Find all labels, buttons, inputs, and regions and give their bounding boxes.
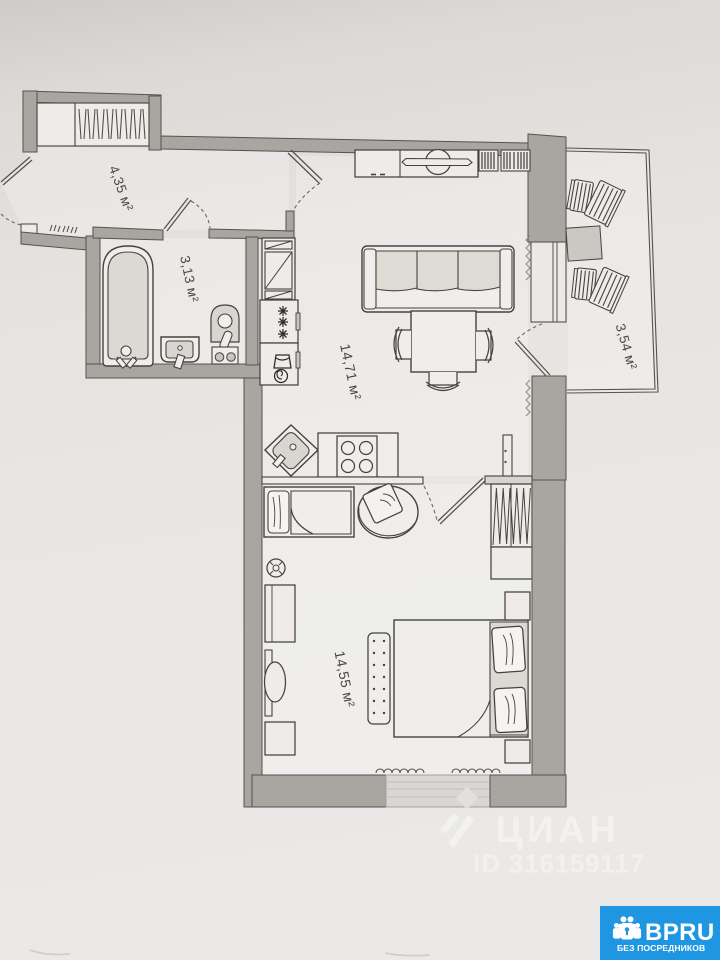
svg-text:БЕЗ ПОСРЕДНИКОВ: БЕЗ ПОСРЕДНИКОВ (617, 943, 705, 953)
svg-text:ЦИАН: ЦИАН (495, 809, 620, 850)
svg-text:BPRU: BPRU (645, 919, 715, 946)
svg-text:ID 316159117: ID 316159117 (473, 849, 645, 879)
